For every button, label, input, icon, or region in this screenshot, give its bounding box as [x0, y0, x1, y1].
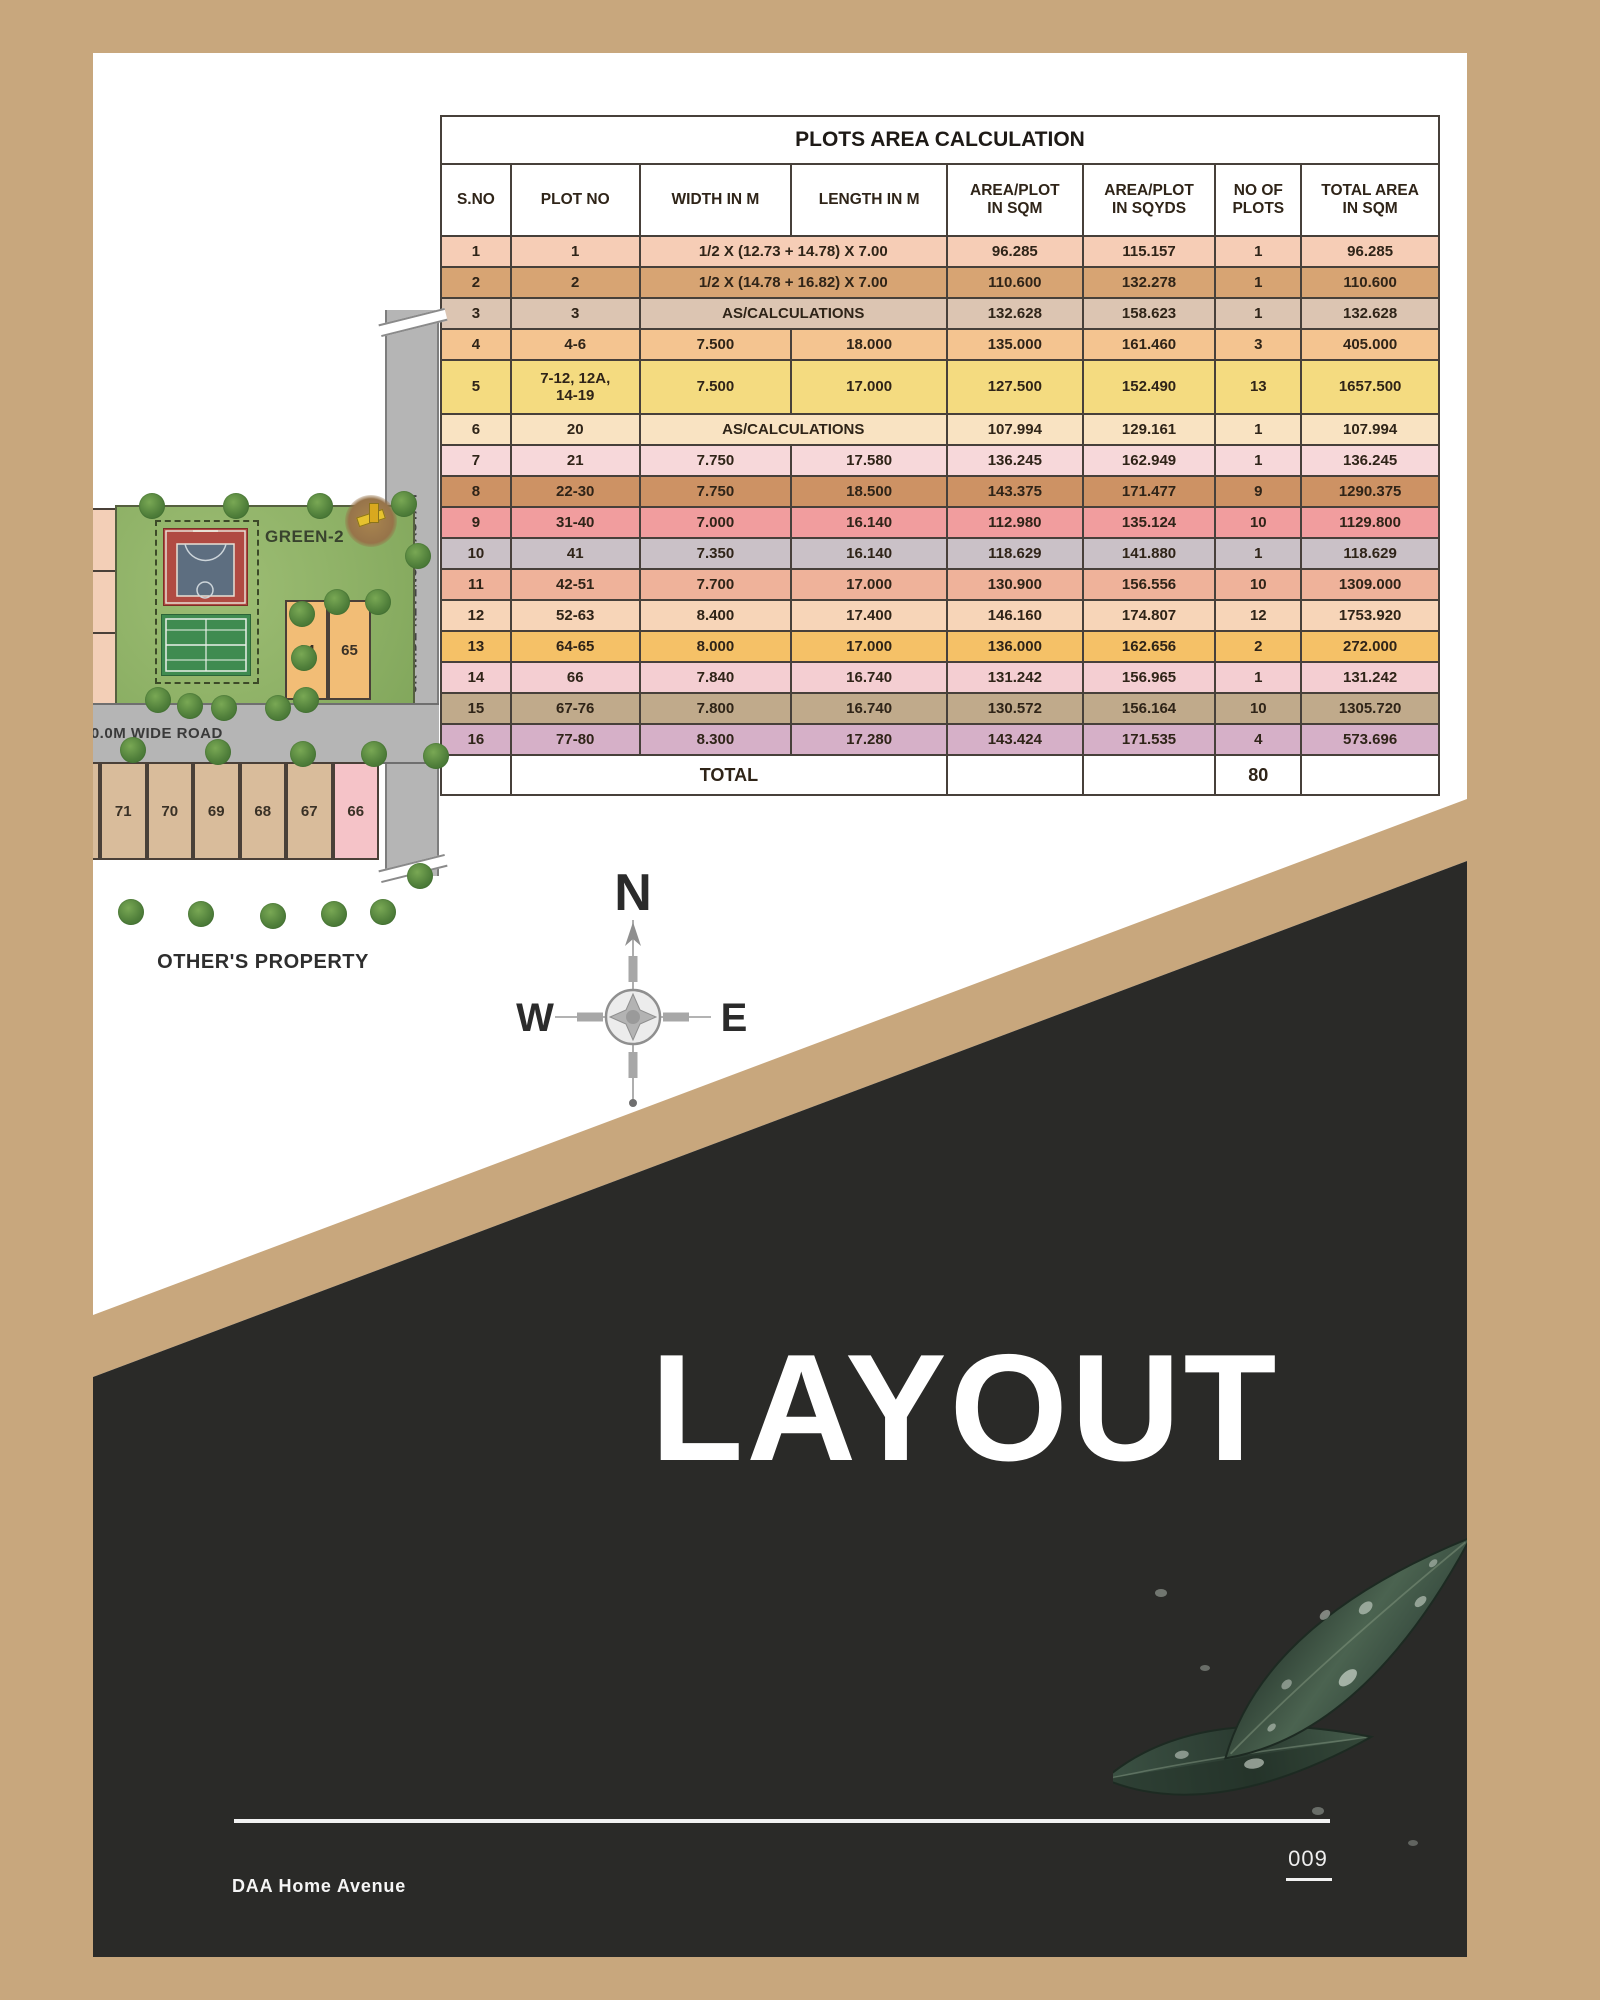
- table-cell: 4: [441, 329, 511, 360]
- table-cell: 1: [1215, 267, 1301, 298]
- table-cell: 16.140: [791, 507, 947, 538]
- table-cell: 96.285: [1301, 236, 1439, 267]
- plots-area-table: PLOTS AREA CALCULATION S.NOPLOT NOWIDTH …: [440, 115, 1440, 796]
- tree-icon: [307, 493, 333, 519]
- table-cell: 156.965: [1083, 662, 1216, 693]
- table-cell: 11: [441, 569, 511, 600]
- tree-icon: [289, 601, 315, 627]
- table-cell: 4-6: [511, 329, 640, 360]
- basketball-court: [163, 528, 248, 606]
- table-cell: 132.628: [1301, 298, 1439, 329]
- tree-icon: [405, 543, 431, 569]
- table-cell: 10: [1215, 693, 1301, 724]
- table-cell: 1: [1215, 236, 1301, 267]
- table-cell: 132.628: [947, 298, 1083, 329]
- table-cell: 136.000: [947, 631, 1083, 662]
- tree-icon: [293, 687, 319, 713]
- table-row: 1677-808.30017.280143.424171.5354573.696: [441, 724, 1439, 755]
- table-cell: 1: [441, 236, 511, 267]
- table-cell: 127.500: [947, 360, 1083, 414]
- tree-icon: [321, 901, 347, 927]
- table-cell: 77-80: [511, 724, 640, 755]
- wide-road-label: 30.0M WIDE ROAD: [93, 725, 223, 742]
- table-cell: 16.140: [791, 538, 947, 569]
- tree-icon: [290, 741, 316, 767]
- table-row: 221/2 X (14.78 + 16.82) X 7.00110.600132…: [441, 267, 1439, 298]
- table-cell: 272.000: [1301, 631, 1439, 662]
- table-cell: 7.750: [640, 476, 792, 507]
- table-cell: 129.161: [1083, 414, 1216, 445]
- tree-icon: [205, 739, 231, 765]
- column-header: NO OF PLOTS: [1215, 164, 1301, 236]
- table-row: 7217.75017.580136.245162.9491136.245: [441, 445, 1439, 476]
- table-cell: 1: [1215, 538, 1301, 569]
- table-cell: 143.375: [947, 476, 1083, 507]
- hero-title: LAYOUT: [515, 1321, 1415, 1496]
- page-number-underline: [1286, 1878, 1332, 1881]
- tree-icon: [139, 493, 165, 519]
- table-cell: 161.460: [1083, 329, 1216, 360]
- table-cell: 7-12, 12A, 14-19: [511, 360, 640, 414]
- table-cell: 3: [1215, 329, 1301, 360]
- table-cell: 20: [511, 414, 640, 445]
- table-cell: 131.242: [1301, 662, 1439, 693]
- table-cell: 107.994: [1301, 414, 1439, 445]
- leaf-artwork: [1113, 1473, 1467, 1873]
- table-cell: 31-40: [511, 507, 640, 538]
- green-area-label: GREEN-2: [265, 527, 344, 547]
- table-cell: 15: [441, 693, 511, 724]
- table-cell: 3: [511, 298, 640, 329]
- tree-icon: [223, 493, 249, 519]
- table-cell: 10: [1215, 569, 1301, 600]
- tree-icon: [291, 645, 317, 671]
- footer-brand: DAA Home Avenue: [232, 1876, 406, 1897]
- tree-icon: [324, 589, 350, 615]
- table-header-row: S.NOPLOT NOWIDTH IN MLENGTH IN MAREA/PLO…: [441, 164, 1439, 236]
- document-page: PLOTS AREA CALCULATION S.NOPLOT NOWIDTH …: [93, 53, 1467, 1957]
- table-cell: 1290.375: [1301, 476, 1439, 507]
- table-cell: 136.245: [947, 445, 1083, 476]
- table-cell: 1: [1215, 662, 1301, 693]
- table-cell: 7.840: [640, 662, 792, 693]
- table-cell: 131.242: [947, 662, 1083, 693]
- table-cell: 1305.720: [1301, 693, 1439, 724]
- tree-icon: [188, 901, 214, 927]
- column-header: PLOT NO: [511, 164, 640, 236]
- table-cell: 7.000: [640, 507, 792, 538]
- tree-icon: [118, 899, 144, 925]
- table-cell: 1309.000: [1301, 569, 1439, 600]
- table-cell: 8.400: [640, 600, 792, 631]
- table-cell: 146.160: [947, 600, 1083, 631]
- column-header: S.NO: [441, 164, 511, 236]
- tree-icon: [120, 737, 146, 763]
- table-cell: 156.164: [1083, 693, 1216, 724]
- table-cell: 112.980: [947, 507, 1083, 538]
- table-cell: 1: [511, 236, 640, 267]
- table-cell: 67-76: [511, 693, 640, 724]
- table-cell: 2: [1215, 631, 1301, 662]
- plot-65: 65: [328, 600, 371, 700]
- table-cell: 136.245: [1301, 445, 1439, 476]
- others-property-label: OTHER'S PROPERTY: [123, 951, 403, 974]
- plot-70: 70: [147, 762, 194, 860]
- table-cell: 6: [441, 414, 511, 445]
- table-cell: [1301, 755, 1439, 795]
- column-header: AREA/PLOT IN SQYDS: [1083, 164, 1216, 236]
- table-cell: 7.800: [640, 693, 792, 724]
- table-cell: 1129.800: [1301, 507, 1439, 538]
- table-cell: 10: [441, 538, 511, 569]
- table-cell: 158.623: [1083, 298, 1216, 329]
- table-cell: 13: [1215, 360, 1301, 414]
- tree-icon: [211, 695, 237, 721]
- tree-icon: [361, 741, 387, 767]
- table-cell: 16.740: [791, 662, 947, 693]
- table-cell: 174.807: [1083, 600, 1216, 631]
- table-cell: 110.600: [1301, 267, 1439, 298]
- table-row: 57-12, 12A, 14-197.50017.000127.500152.4…: [441, 360, 1439, 414]
- table-cell: 7.500: [640, 360, 792, 414]
- table-cell: 110.600: [947, 267, 1083, 298]
- table-cell: 1: [1215, 445, 1301, 476]
- table-cell: 1/2 X (12.73 + 14.78) X 7.00: [640, 236, 947, 267]
- table-cell: 41: [511, 538, 640, 569]
- table-cell: 12: [441, 600, 511, 631]
- table-cell: 135.000: [947, 329, 1083, 360]
- table-cell: 8.000: [640, 631, 792, 662]
- table-cell: 7: [441, 445, 511, 476]
- table-row: 1567-767.80016.740130.572156.164101305.7…: [441, 693, 1439, 724]
- table-cell: [947, 755, 1083, 795]
- table-cell: 9: [1215, 476, 1301, 507]
- column-header: TOTAL AREA IN SQM: [1301, 164, 1439, 236]
- table-cell: 1/2 X (14.78 + 16.82) X 7.00: [640, 267, 947, 298]
- table-cell: 13: [441, 631, 511, 662]
- table-row: 111/2 X (12.73 + 14.78) X 7.0096.285115.…: [441, 236, 1439, 267]
- table-cell: 22-30: [511, 476, 640, 507]
- table-cell: 16: [441, 724, 511, 755]
- plot-partial: [93, 762, 100, 860]
- table-cell: 10: [1215, 507, 1301, 538]
- sports-zone-boundary: [155, 520, 259, 684]
- column-header: WIDTH IN M: [640, 164, 792, 236]
- table-cell: 1753.920: [1301, 600, 1439, 631]
- table-title: PLOTS AREA CALCULATION: [441, 116, 1439, 164]
- column-header: AREA/PLOT IN SQM: [947, 164, 1083, 236]
- table-cell: 66: [511, 662, 640, 693]
- site-plan: 3K WIDE REVENUE RASTAH: [93, 303, 445, 1043]
- road-break-icon: [378, 308, 447, 337]
- tree-icon: [391, 491, 417, 517]
- table-cell: AS/CALCULATIONS: [640, 414, 947, 445]
- table-cell: 52-63: [511, 600, 640, 631]
- table-cell: 17.000: [791, 631, 947, 662]
- table-cell: 64-65: [511, 631, 640, 662]
- table-cell: 14: [441, 662, 511, 693]
- table-cell: 12: [1215, 600, 1301, 631]
- table-row: 14667.84016.740131.242156.9651131.242: [441, 662, 1439, 693]
- playground-icon: [345, 495, 397, 547]
- table-cell: 1: [1215, 414, 1301, 445]
- table-cell: 18.000: [791, 329, 947, 360]
- table-cell: 115.157: [1083, 236, 1216, 267]
- table-cell: 18.500: [791, 476, 947, 507]
- table-cell: 17.000: [791, 360, 947, 414]
- table-cell: 107.994: [947, 414, 1083, 445]
- table-cell: 171.535: [1083, 724, 1216, 755]
- plot-66: 66: [333, 762, 380, 860]
- plot-67: 67: [286, 762, 333, 860]
- table-cell: 17.400: [791, 600, 947, 631]
- table-cell: 141.880: [1083, 538, 1216, 569]
- table-total-row: TOTAL 80: [441, 755, 1439, 795]
- table-cell: [1083, 755, 1216, 795]
- tree-icon: [423, 743, 449, 769]
- table-cell: 5: [441, 360, 511, 414]
- compass-rose: N W E: [513, 848, 753, 1118]
- page-number: 009: [1263, 1846, 1353, 1872]
- table-cell: 130.900: [947, 569, 1083, 600]
- tree-icon: [177, 693, 203, 719]
- table-cell: 4: [1215, 724, 1301, 755]
- table-row: 1252-638.40017.400146.160174.807121753.9…: [441, 600, 1439, 631]
- table-cell: 130.572: [947, 693, 1083, 724]
- tree-icon: [365, 589, 391, 615]
- table-row: 822-307.75018.500143.375171.47791290.375: [441, 476, 1439, 507]
- table-cell: 1: [1215, 298, 1301, 329]
- tree-icon: [370, 899, 396, 925]
- table-cell: [441, 755, 511, 795]
- compass-west-label: W: [516, 996, 554, 1040]
- plot-69: 69: [193, 762, 240, 860]
- table-cell: 135.124: [1083, 507, 1216, 538]
- table-cell: 573.696: [1301, 724, 1439, 755]
- table-row: 10417.35016.140118.629141.8801118.629: [441, 538, 1439, 569]
- plot-68: 68: [240, 762, 287, 860]
- total-label-cell: TOTAL: [511, 755, 947, 795]
- table-cell: 8.300: [640, 724, 792, 755]
- table-cell: 9: [441, 507, 511, 538]
- table-cell: 162.949: [1083, 445, 1216, 476]
- table-cell: 1657.500: [1301, 360, 1439, 414]
- column-header: LENGTH IN M: [791, 164, 947, 236]
- table-cell: 7.700: [640, 569, 792, 600]
- tree-icon: [265, 695, 291, 721]
- table-cell: 17.000: [791, 569, 947, 600]
- footer-divider: [234, 1819, 1330, 1823]
- table-cell: 162.656: [1083, 631, 1216, 662]
- table-cell: 8: [441, 476, 511, 507]
- table-cell: 152.490: [1083, 360, 1216, 414]
- table-row: 1364-658.00017.000136.000162.6562272.000: [441, 631, 1439, 662]
- table-cell: 7.500: [640, 329, 792, 360]
- table-cell: 171.477: [1083, 476, 1216, 507]
- total-plots-cell: 80: [1215, 755, 1301, 795]
- table-cell: 2: [511, 267, 640, 298]
- table-cell: 156.556: [1083, 569, 1216, 600]
- table-row: 33AS/CALCULATIONS132.628158.6231132.628: [441, 298, 1439, 329]
- plot-71: 71: [100, 762, 147, 860]
- table-cell: 405.000: [1301, 329, 1439, 360]
- table-cell: 3: [441, 298, 511, 329]
- table-cell: 132.278: [1083, 267, 1216, 298]
- table-cell: 7.750: [640, 445, 792, 476]
- table-cell: 16.740: [791, 693, 947, 724]
- tennis-court: [161, 614, 251, 676]
- table-row: 44-67.50018.000135.000161.4603405.000: [441, 329, 1439, 360]
- tree-icon: [260, 903, 286, 929]
- table-cell: 118.629: [947, 538, 1083, 569]
- table-cell: 96.285: [947, 236, 1083, 267]
- table-row: 931-407.00016.140112.980135.124101129.80…: [441, 507, 1439, 538]
- table-cell: 42-51: [511, 569, 640, 600]
- table-cell: 17.280: [791, 724, 947, 755]
- table-cell: 2: [441, 267, 511, 298]
- table-row: 620AS/CALCULATIONS107.994129.1611107.994: [441, 414, 1439, 445]
- table-cell: 21: [511, 445, 640, 476]
- table-cell: 7.350: [640, 538, 792, 569]
- table-cell: 17.580: [791, 445, 947, 476]
- table-cell: 118.629: [1301, 538, 1439, 569]
- compass-east-label: E: [721, 996, 748, 1040]
- table-cell: 143.424: [947, 724, 1083, 755]
- compass-north-label: N: [614, 864, 652, 922]
- tree-icon: [145, 687, 171, 713]
- table-cell: AS/CALCULATIONS: [640, 298, 947, 329]
- table-row: 1142-517.70017.000130.900156.556101309.0…: [441, 569, 1439, 600]
- tree-icon: [407, 863, 433, 889]
